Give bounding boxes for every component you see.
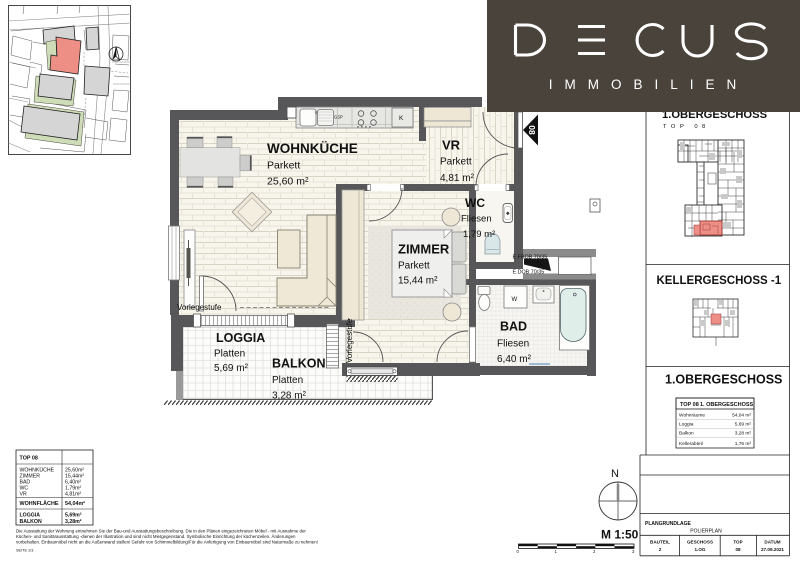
svg-text:Balkon: Balkon xyxy=(679,431,694,437)
svg-text:DATUM: DATUM xyxy=(764,540,780,545)
svg-text:3,28 m²: 3,28 m² xyxy=(272,391,307,402)
svg-text:WOHNKÜCHE: WOHNKÜCHE xyxy=(20,467,55,474)
svg-text:W: W xyxy=(512,297,518,303)
svg-text:15,44 m²: 15,44 m² xyxy=(398,276,438,287)
svg-text:4,81m²: 4,81m² xyxy=(65,492,81,498)
svg-text:Parkett: Parkett xyxy=(440,157,472,168)
svg-text:5,69 m²: 5,69 m² xyxy=(214,363,249,374)
svg-text:25,60 m²: 25,60 m² xyxy=(267,176,309,188)
svg-text:N: N xyxy=(611,468,619,480)
svg-text:TOP: TOP xyxy=(733,540,742,545)
svg-text:5,69m²: 5,69m² xyxy=(65,513,82,519)
svg-text:1.OBERGESCHOSS: 1.OBERGESCHOSS xyxy=(665,373,782,387)
svg-text:Kellerabteil: Kellerabteil xyxy=(679,441,703,447)
svg-text:Wohnräume: Wohnräume xyxy=(679,413,705,419)
svg-text:Fliesen: Fliesen xyxy=(497,339,529,350)
svg-text:K: K xyxy=(399,115,404,122)
svg-text:Die Ausstattung der Wohnung en: Die Ausstattung der Wohnung entnehmen Si… xyxy=(16,529,306,534)
svg-text:27.09.2021: 27.09.2021 xyxy=(761,547,784,552)
svg-text:54,04m²: 54,04m² xyxy=(65,501,85,507)
svg-text:3,28 m²: 3,28 m² xyxy=(735,431,752,437)
svg-text:08: 08 xyxy=(735,547,741,552)
svg-text:LOGGIA: LOGGIA xyxy=(216,331,265,345)
svg-text:BAUTEIL: BAUTEIL xyxy=(650,540,670,545)
svg-text:Loggia: Loggia xyxy=(679,422,694,428)
svg-text:KELLERGESCHOSS -1: KELLERGESCHOSS -1 xyxy=(657,275,782,287)
svg-text:1,76 m²: 1,76 m² xyxy=(735,441,752,447)
svg-text:WOHNKÜCHE: WOHNKÜCHE xyxy=(267,141,358,156)
svg-text:Parkett: Parkett xyxy=(398,261,430,272)
svg-text:1,79 m²: 1,79 m² xyxy=(463,229,495,240)
svg-text:1.OG: 1.OG xyxy=(695,547,706,552)
svg-text:BAD: BAD xyxy=(500,320,527,334)
svg-text:E.DOB 70/35: E.DOB 70/35 xyxy=(513,270,545,276)
svg-text:WC: WC xyxy=(465,196,485,210)
svg-text:ZIMMER: ZIMMER xyxy=(398,242,450,257)
svg-text:5,69 m²: 5,69 m² xyxy=(735,422,752,428)
svg-text:LOGGIA: LOGGIA xyxy=(20,513,41,519)
svg-text:Parkett: Parkett xyxy=(267,160,300,172)
svg-text:GSP: GSP xyxy=(334,115,343,120)
svg-text:vorbehalten. Einbaumöbel nicht: vorbehalten. Einbaumöbel nicht an die Au… xyxy=(16,540,318,545)
svg-text:08: 08 xyxy=(527,125,537,135)
svg-text:2: 2 xyxy=(659,547,662,552)
svg-text:Fliesen: Fliesen xyxy=(461,214,492,225)
svg-text:PLANGRUNDLAGE: PLANGRUNDLAGE xyxy=(645,521,691,527)
svg-text:Platten: Platten xyxy=(214,349,245,360)
svg-text:Vorlegestufe: Vorlegestufe xyxy=(177,303,222,312)
svg-text:Vorlegestufe: Vorlegestufe xyxy=(345,318,354,363)
svg-text:1. OBERGESCHOSS: 1. OBERGESCHOSS xyxy=(700,402,754,408)
svg-text:IMMOBILIEN: IMMOBILIEN xyxy=(549,77,749,92)
svg-text:WOHNFLÄCHE: WOHNFLÄCHE xyxy=(20,500,59,507)
svg-text:SEITE 1/3: SEITE 1/3 xyxy=(16,549,33,553)
svg-text:BALKON: BALKON xyxy=(272,357,325,371)
svg-text:6,40 m²: 6,40 m² xyxy=(497,354,532,365)
svg-text:GESCHOSS: GESCHOSS xyxy=(687,540,713,545)
svg-text:TOP 08: TOP 08 xyxy=(20,456,38,462)
svg-text:Platten: Platten xyxy=(272,375,303,386)
svg-text:Küchen- und Sanitärausstattung: Küchen- und Sanitärausstattung -dienen d… xyxy=(16,534,296,539)
svg-text:4,81 m²: 4,81 m² xyxy=(440,173,475,184)
svg-text:POLIERPLAN: POLIERPLAN xyxy=(690,529,722,535)
svg-text:TOP 08: TOP 08 xyxy=(663,124,710,130)
svg-text:M 1:50: M 1:50 xyxy=(601,528,639,542)
svg-text:TOP 08: TOP 08 xyxy=(680,402,699,408)
svg-text:VR: VR xyxy=(20,492,27,498)
svg-text:BALKON: BALKON xyxy=(20,519,42,525)
svg-text:VR: VR xyxy=(442,138,461,153)
svg-text:54,04 m²: 54,04 m² xyxy=(732,413,751,419)
svg-text:3,28m²: 3,28m² xyxy=(65,519,82,525)
svg-text:E.FBOB 70/35: E.FBOB 70/35 xyxy=(513,255,548,261)
